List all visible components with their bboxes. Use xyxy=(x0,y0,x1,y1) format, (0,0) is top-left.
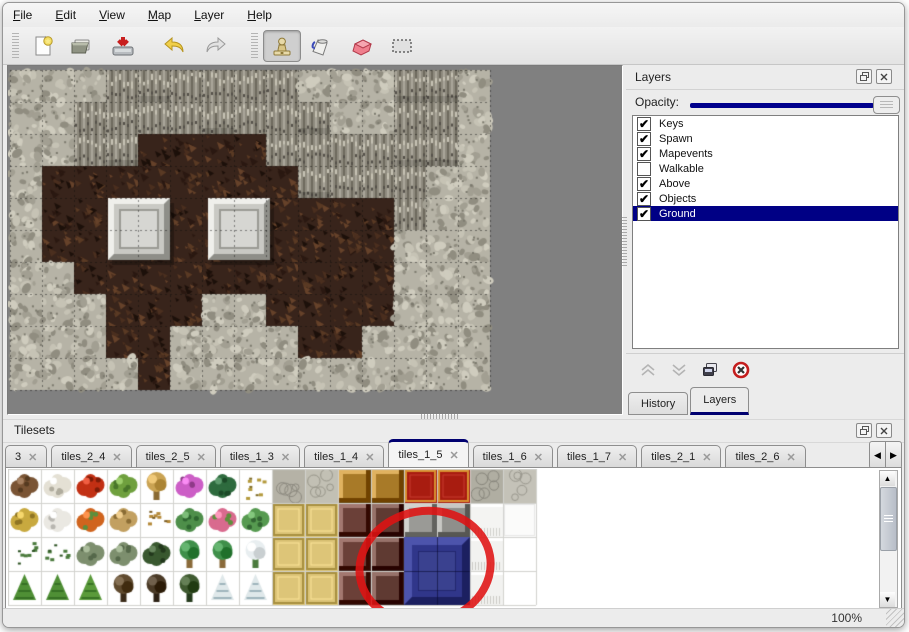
tileset-tab-label: tiles_1_5 xyxy=(398,449,442,461)
tab-history[interactable]: History xyxy=(628,392,688,415)
tileset-tab-label: tiles_1_3 xyxy=(230,451,274,463)
menu-item-file[interactable]: File xyxy=(13,8,32,22)
layer-name: Above xyxy=(659,178,690,190)
open-file-button[interactable] xyxy=(64,30,102,62)
opacity-row: Opacity: xyxy=(626,91,904,113)
layer-row-keys[interactable]: ✔Keys xyxy=(633,116,898,131)
close-tab-icon[interactable]: ✕ xyxy=(449,449,458,462)
undo-button[interactable] xyxy=(156,30,194,62)
zoom-level: 100% xyxy=(831,611,862,625)
scroll-up-button[interactable]: ▲ xyxy=(880,471,895,486)
layer-name: Keys xyxy=(659,118,683,130)
close-tab-icon[interactable]: ✕ xyxy=(534,451,543,464)
opacity-label: Opacity: xyxy=(635,95,679,109)
layer-checkbox[interactable]: ✔ xyxy=(637,132,651,146)
menu-item-layer[interactable]: Layer xyxy=(194,8,224,22)
close-tab-icon[interactable]: ✕ xyxy=(112,451,121,464)
delete-layer-button[interactable] xyxy=(727,357,754,383)
float-panel-button[interactable] xyxy=(856,69,872,84)
new-file-icon xyxy=(31,34,55,58)
layers-panel-title: Layers xyxy=(635,70,671,84)
layer-row-objects[interactable]: ✔Objects xyxy=(633,191,898,206)
tileset-tab-label: tiles_2_4 xyxy=(61,451,105,463)
layer-name: Ground xyxy=(659,208,696,220)
layer-row-spawn[interactable]: ✔Spawn xyxy=(633,131,898,146)
tab-scroll-right-button[interactable]: ▶ xyxy=(886,441,902,469)
close-tab-icon[interactable]: ✕ xyxy=(702,451,711,464)
tileset-tab-label: tiles_1_7 xyxy=(567,451,611,463)
tab-scroll-left-button[interactable]: ◀ xyxy=(869,441,886,469)
close-tilesets-button[interactable] xyxy=(876,423,892,438)
close-tab-icon[interactable]: ✕ xyxy=(197,451,206,464)
fill-tool-button[interactable] xyxy=(303,30,341,62)
menu-item-help[interactable]: Help xyxy=(247,8,272,22)
layer-row-ground[interactable]: ✔Ground xyxy=(633,206,898,221)
toolbar-grip[interactable] xyxy=(12,33,19,59)
move-layer-down-button[interactable] xyxy=(665,357,692,383)
move-layer-up-button[interactable] xyxy=(634,357,661,383)
layer-checkbox[interactable]: ✔ xyxy=(637,177,651,191)
tileset-tab-bar: 3✕tiles_2_4✕tiles_2_5✕tiles_1_3✕tiles_1_… xyxy=(5,441,902,469)
scrollbar-thumb[interactable] xyxy=(880,487,897,551)
save-file-button[interactable] xyxy=(104,30,142,62)
layer-name: Mapevents xyxy=(659,148,713,160)
layer-name: Walkable xyxy=(659,163,704,175)
toolbar-grip-2[interactable] xyxy=(251,33,258,59)
layer-checkbox[interactable]: ✔ xyxy=(637,207,651,221)
tileset-tab-label: tiles_1_4 xyxy=(314,451,358,463)
opacity-slider-handle[interactable] xyxy=(873,96,900,114)
layer-checkbox[interactable]: ✔ xyxy=(637,117,651,131)
tileset-tab-tiles_1_3[interactable]: tiles_1_3✕ xyxy=(220,445,300,469)
layers-panel: Layers Opacity: ✔Keys✔Spawn✔MapeventsWal… xyxy=(626,65,904,415)
tileset-tab-tiles_1_6[interactable]: tiles_1_6✕ xyxy=(473,445,553,469)
toolbar xyxy=(3,27,905,65)
stamp-tool-button[interactable] xyxy=(263,30,301,62)
save-icon xyxy=(110,34,136,58)
paint-bucket-icon xyxy=(309,34,335,58)
tileset-tab-tiles_1_4[interactable]: tiles_1_4✕ xyxy=(304,445,384,469)
layer-checkbox[interactable] xyxy=(637,162,651,176)
selection-rect-icon xyxy=(389,34,415,58)
opacity-slider-track[interactable] xyxy=(690,103,874,108)
menu-item-edit[interactable]: Edit xyxy=(55,8,76,22)
redo-button[interactable] xyxy=(196,30,234,62)
layer-name: Spawn xyxy=(659,133,693,145)
close-panel-button[interactable] xyxy=(876,69,892,84)
tileset-tab-label: tiles_1_6 xyxy=(483,451,527,463)
close-tab-icon[interactable]: ✕ xyxy=(618,451,627,464)
close-tab-icon[interactable]: ✕ xyxy=(787,451,796,464)
layer-name: Objects xyxy=(659,193,696,205)
tileset-tab-tiles_2_4[interactable]: tiles_2_4✕ xyxy=(51,445,131,469)
tab-layers[interactable]: Layers xyxy=(690,387,749,415)
eraser-tool-button[interactable] xyxy=(343,30,381,62)
tileset-tab-tiles_1_5[interactable]: tiles_1_5✕ xyxy=(388,439,468,469)
duplicate-layer-button[interactable] xyxy=(696,357,723,383)
rect-select-tool-button[interactable] xyxy=(383,30,421,62)
layer-checkbox[interactable]: ✔ xyxy=(637,192,651,206)
tilesets-panel: Tilesets 3✕tiles_2_4✕tiles_2_5✕tiles_1_3… xyxy=(3,419,904,609)
layer-checkbox[interactable]: ✔ xyxy=(637,147,651,161)
layer-row-mapevents[interactable]: ✔Mapevents xyxy=(633,146,898,161)
menu-bar: FileEditViewMapLayerHelp xyxy=(3,3,905,27)
open-folder-icon xyxy=(70,34,96,58)
tileset-tab-tiles_2_5[interactable]: tiles_2_5✕ xyxy=(136,445,216,469)
map-canvas[interactable] xyxy=(8,66,620,412)
menu-item-view[interactable]: View xyxy=(99,8,125,22)
layer-row-above[interactable]: ✔Above xyxy=(633,176,898,191)
panel-bottom-tabs: HistoryLayers xyxy=(628,389,751,415)
close-tab-icon[interactable]: ✕ xyxy=(365,451,374,464)
tileset-tab-label: tiles_2_1 xyxy=(651,451,695,463)
eraser-icon xyxy=(348,34,376,58)
layer-buttons-row xyxy=(626,353,905,386)
layer-row-walkable[interactable]: Walkable xyxy=(633,161,898,176)
status-bar: 100% xyxy=(3,608,904,627)
close-tab-icon[interactable]: ✕ xyxy=(28,451,37,464)
tileset-tab-label: tiles_2_5 xyxy=(146,451,190,463)
tileset-tab-3[interactable]: 3✕ xyxy=(5,445,47,469)
resize-grip[interactable] xyxy=(886,609,904,627)
tilesets-panel-title: Tilesets xyxy=(14,423,55,437)
tileset-scrollbar[interactable]: ▲ ▼ xyxy=(879,470,898,608)
float-tilesets-button[interactable] xyxy=(856,423,872,438)
new-file-button[interactable] xyxy=(24,30,62,62)
tileset-tab-tiles_2_6[interactable]: tiles_2_6✕ xyxy=(725,445,805,469)
tileset-tab-label: 3 xyxy=(15,451,21,463)
map-canvas-view[interactable] xyxy=(7,65,623,415)
undo-icon xyxy=(162,34,188,58)
tileset-canvas[interactable] xyxy=(8,469,548,609)
stamp-icon xyxy=(270,34,294,58)
close-tab-icon[interactable]: ✕ xyxy=(281,451,290,464)
tileset-tab-label: tiles_2_6 xyxy=(735,451,779,463)
redo-icon xyxy=(202,34,228,58)
menu-item-map[interactable]: Map xyxy=(148,8,171,22)
tileset-content[interactable]: ▲ ▼ xyxy=(5,467,902,611)
scroll-down-button[interactable]: ▼ xyxy=(880,592,895,607)
tileset-tab-tiles_2_1[interactable]: tiles_2_1✕ xyxy=(641,445,721,469)
app-window: FileEditViewMapLayerHelp xyxy=(2,2,905,628)
layers-panel-titlebar: Layers xyxy=(626,65,904,90)
layer-list: ✔Keys✔Spawn✔MapeventsWalkable✔Above✔Obje… xyxy=(632,115,899,349)
tileset-tab-tiles_1_7[interactable]: tiles_1_7✕ xyxy=(557,445,637,469)
